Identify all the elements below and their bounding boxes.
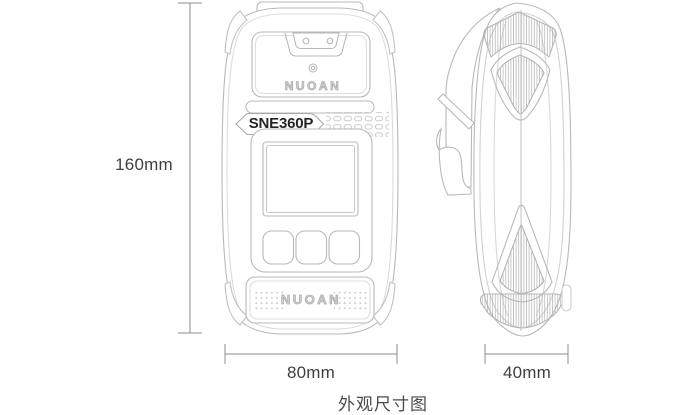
button-left [263, 231, 294, 264]
brand-logo-bottom: NUOAN [273, 292, 349, 307]
panel-band [246, 101, 374, 113]
front-view [222, 2, 398, 334]
device-line-art [0, 0, 700, 412]
display-screen-outer [263, 142, 358, 216]
diagram-caption: 外观尺寸图 [322, 390, 444, 415]
side-bottom-hatch [481, 294, 564, 328]
side-view [437, 3, 571, 336]
sensor-notch [293, 33, 339, 49]
side-port-tab [562, 285, 571, 311]
front-buttons [263, 231, 360, 264]
dimension-diagram: 160mm 80mm 40mm 外观尺寸图 SNE360P NUOAN NUOA… [0, 0, 700, 412]
brand-logo-top: NUOAN [276, 79, 350, 93]
button-right [329, 231, 360, 264]
button-middle [296, 231, 327, 264]
height-dimension-label: 160mm [110, 155, 178, 175]
model-badge: SNE360P [241, 115, 321, 132]
height-dimension-line [178, 3, 202, 333]
width-dimension-line [225, 344, 397, 364]
width-dimension-label: 80mm [271, 363, 351, 383]
depth-dimension-label: 40mm [486, 363, 568, 383]
depth-dimension-line [485, 344, 568, 364]
